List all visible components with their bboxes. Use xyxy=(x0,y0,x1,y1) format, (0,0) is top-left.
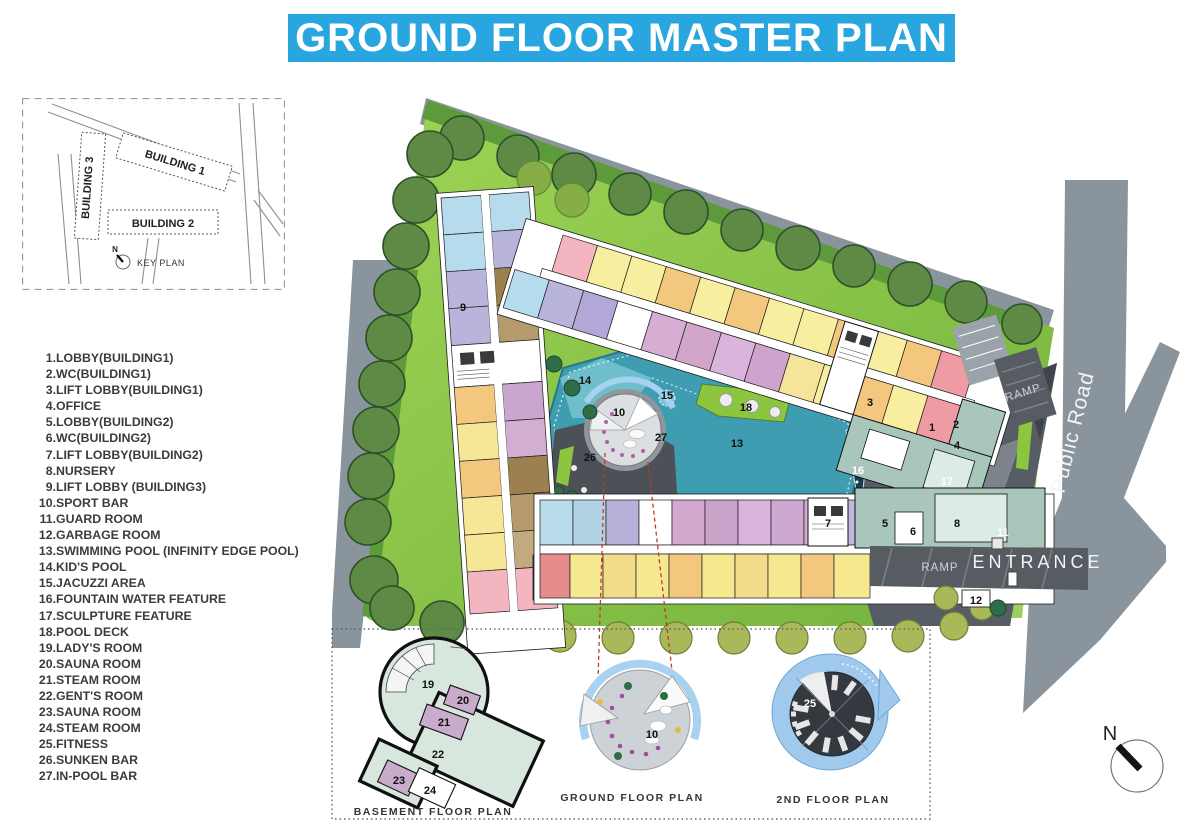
title-banner: GROUND FLOOR MASTER PLAN xyxy=(288,14,955,62)
legend-item: 10.SPORT BAR xyxy=(30,495,330,511)
entrance-gate xyxy=(1008,572,1017,586)
north-label: N xyxy=(1103,723,1117,745)
legend-item: 9.LIFT LOBBY (BUILDING3) xyxy=(30,479,330,495)
page-title: GROUND FLOOR MASTER PLAN xyxy=(295,16,948,61)
basement-room-21: 21 xyxy=(438,717,450,729)
marker-2-wc-b1: 2 xyxy=(953,419,959,431)
basement-room-20: 20 xyxy=(457,695,469,707)
marker-4-office: 4 xyxy=(954,440,961,452)
marker-15-jacuzzi: 15 xyxy=(661,390,673,402)
key-plan-caption: KEY PLAN xyxy=(137,258,185,268)
marker-8-nursery: 8 xyxy=(954,518,960,530)
ground-floor-plan-detail: 10 GROUND FLOOR PLAN xyxy=(560,664,703,804)
marker-11-guard-room: 11 xyxy=(997,527,1009,539)
legend-item: 12.GARBAGE ROOM xyxy=(30,527,330,543)
basement-floor-plan: 19 20 21 22 23 24 BASEMENT FLOOR PLAN xyxy=(354,638,544,818)
second-detail-marker-25: 25 xyxy=(804,698,816,710)
legend-item: 1.LOBBY(BUILDING1) xyxy=(30,350,330,366)
legend-item: 2.WC(BUILDING1) xyxy=(30,366,330,382)
basement-room-24: 24 xyxy=(424,785,437,797)
legend-item: 16.FOUNTAIN WATER FEATURE xyxy=(30,591,330,607)
legend-item: 17.SCULPTURE FEATURE xyxy=(30,608,330,624)
legend-item: 6.WC(BUILDING2) xyxy=(30,430,330,446)
legend-item: 7.LIFT LOBBY(BUILDING2) xyxy=(30,447,330,463)
legend-item: 18.POOL DECK xyxy=(30,624,330,640)
marker-27-in-pool-bar: 27 xyxy=(655,432,667,444)
legend-list: 1.LOBBY(BUILDING1) 2.WC(BUILDING1) 3.LIF… xyxy=(30,350,330,785)
ramp-lower-label: RAMP xyxy=(921,562,958,574)
detail-plans-box: 19 20 21 22 23 24 BASEMENT FLOOR PLAN xyxy=(332,629,930,819)
page: GROUND FLOOR MASTER PLAN BUILDING 3 BUIL… xyxy=(0,0,1200,824)
legend-item: 13.SWIMMING POOL (INFINITY EDGE POOL) xyxy=(30,543,330,559)
marker-17-sculpture: 17 xyxy=(941,476,953,488)
basement-room-22: 22 xyxy=(432,749,444,761)
legend-item: 11.GUARD ROOM xyxy=(30,511,330,527)
legend-item: 21.STEAM ROOM xyxy=(30,672,330,688)
basement-room-23: 23 xyxy=(393,775,405,787)
legend-item: 3.LIFT LOBBY(BUILDING1) xyxy=(30,382,330,398)
site-plan: 19 20 21 22 23 24 BASEMENT FLOOR PLAN xyxy=(322,78,1200,824)
marker-26-sunken-bar: 26 xyxy=(584,452,596,464)
key-plan-north-label: N xyxy=(112,245,118,254)
key-plan-building-2: BUILDING 2 xyxy=(108,210,218,234)
legend-item: 8.NURSERY xyxy=(30,463,330,479)
legend-item: 20.SAUNA ROOM xyxy=(30,656,330,672)
marker-3-lift-lobby-b1: 3 xyxy=(867,397,873,409)
guard-room xyxy=(992,538,1003,549)
basement-caption: BASEMENT FLOOR PLAN xyxy=(354,806,513,818)
marker-14-kids-pool: 14 xyxy=(579,375,592,387)
legend-item: 19.LADY'S ROOM xyxy=(30,640,330,656)
marker-18-pool-deck: 18 xyxy=(740,402,752,414)
second-floor-plan-detail: 25 2ND FLOOR PLAN xyxy=(772,654,900,806)
marker-13-swimming-pool: 13 xyxy=(731,438,743,450)
legend-item: 22.GENT'S ROOM xyxy=(30,688,330,704)
basement-room-19: 19 xyxy=(422,679,434,691)
legend-item: 27.IN-POOL BAR xyxy=(30,768,330,784)
legend-item: 14.KID'S POOL xyxy=(30,559,330,575)
marker-10-sport-bar: 10 xyxy=(613,407,625,419)
legend-item: 26.SUNKEN BAR xyxy=(30,752,330,768)
legend-item: 5.LOBBY(BUILDING2) xyxy=(30,414,330,430)
key-plan: BUILDING 3 BUILDING 1 BUILDING 2 N KEY P… xyxy=(22,98,285,290)
legend-item: 15.JACUZZI AREA xyxy=(30,575,330,591)
legend-item: 4.OFFICE xyxy=(30,398,330,414)
legend-item: 25.FITNESS xyxy=(30,736,330,752)
entrance-label: ENTRANCE xyxy=(972,552,1103,572)
legend-item: 23.SAUNA ROOM xyxy=(30,704,330,720)
second-caption: 2ND FLOOR PLAN xyxy=(776,794,889,806)
marker-7-lift-lobby-b2: 7 xyxy=(825,518,831,530)
marker-12-garbage-room: 12 xyxy=(970,595,982,607)
marker-6-wc-b2: 6 xyxy=(910,526,916,538)
marker-9-lift-lobby-b3: 9 xyxy=(460,302,466,314)
legend-item: 24.STEAM ROOM xyxy=(30,720,330,736)
ground-caption: GROUND FLOOR PLAN xyxy=(560,792,703,804)
marker-5-lobby-b2: 5 xyxy=(882,518,888,530)
marker-16-fountain: 16 xyxy=(852,465,864,477)
key-plan-building-2-label: BUILDING 2 xyxy=(132,218,194,230)
ground-detail-marker-10: 10 xyxy=(646,729,658,741)
north-compass: N xyxy=(1103,723,1163,792)
marker-1-lobby-b1: 1 xyxy=(929,422,935,434)
